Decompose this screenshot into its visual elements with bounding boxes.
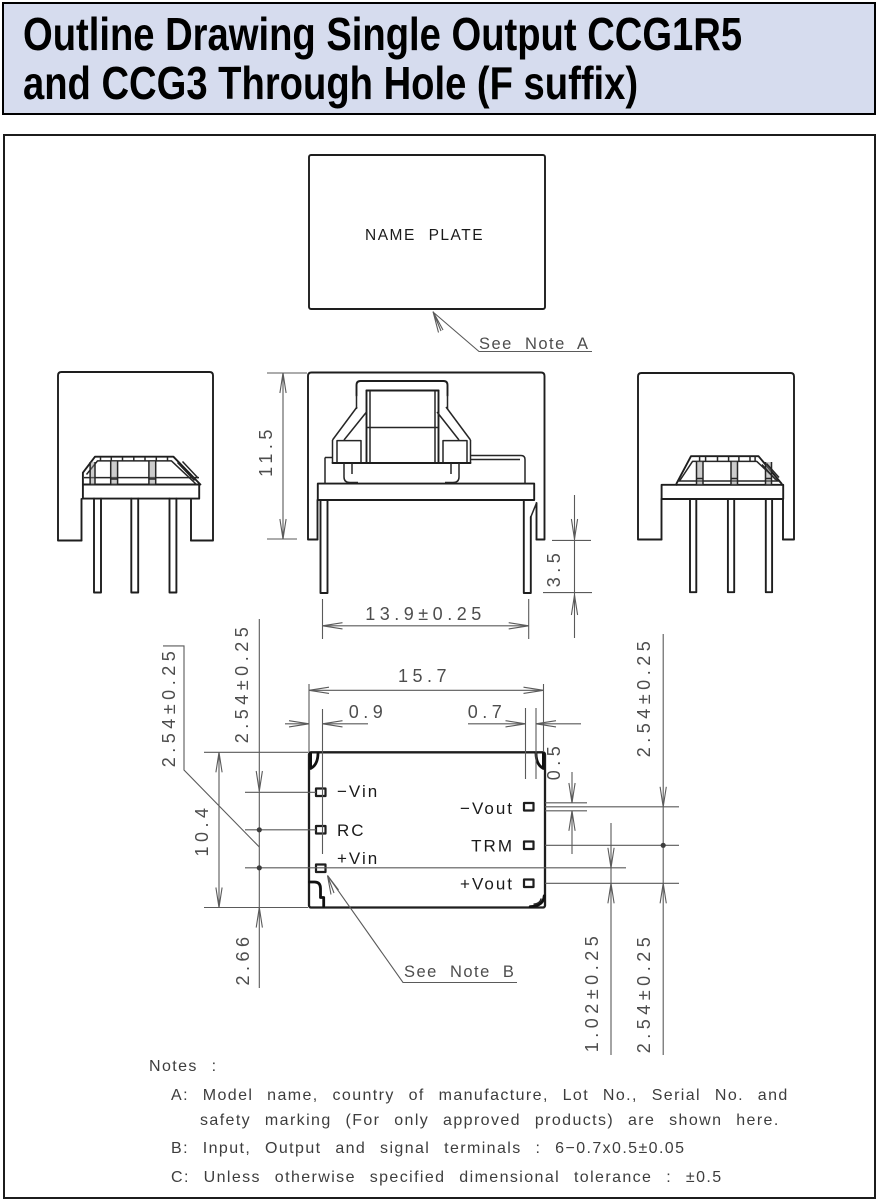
svg-text:−Vin: −Vin <box>337 782 379 801</box>
svg-text:safety marking (For only appro: safety marking (For only approved produc… <box>200 1112 780 1129</box>
svg-text:2.54±0.25: 2.54±0.25 <box>232 623 252 743</box>
svg-text:See Note B: See Note B <box>404 963 515 981</box>
svg-text:+Vin: +Vin <box>337 849 379 868</box>
svg-text:0.7: 0.7 <box>468 702 507 722</box>
svg-text:3.5: 3.5 <box>544 549 564 588</box>
svg-text:0.5: 0.5 <box>544 742 564 781</box>
svg-text:C: Unless otherwise specified: C: Unless otherwise specified dimensiona… <box>171 1169 723 1186</box>
svg-text:See Note A: See Note A <box>479 335 589 353</box>
svg-text:11.5: 11.5 <box>256 425 276 477</box>
svg-text:+Vout: +Vout <box>460 875 514 894</box>
svg-text:15.7: 15.7 <box>398 666 451 686</box>
svg-text:1.02±0.25: 1.02±0.25 <box>582 932 602 1052</box>
svg-text:TRM: TRM <box>471 837 514 856</box>
svg-text:NAME PLATE: NAME PLATE <box>365 227 484 244</box>
svg-text:−Vout: −Vout <box>460 799 514 818</box>
svg-text:10.4: 10.4 <box>192 803 212 856</box>
svg-text:2.66: 2.66 <box>233 932 253 985</box>
svg-text:2.54±0.25: 2.54±0.25 <box>159 647 179 767</box>
svg-text:Notes :: Notes : <box>149 1058 218 1075</box>
svg-text:13.9±0.25: 13.9±0.25 <box>365 604 485 624</box>
svg-text:0.9: 0.9 <box>349 702 388 722</box>
svg-text:RC: RC <box>337 821 366 840</box>
svg-text:B: Input, Output and signal te: B: Input, Output and signal terminals : … <box>171 1140 685 1157</box>
svg-text:A: Model name, country of manu: A: Model name, country of manufacture, L… <box>171 1087 789 1104</box>
svg-text:2.54±0.25: 2.54±0.25 <box>634 933 654 1053</box>
svg-text:2.54±0.25: 2.54±0.25 <box>634 637 654 757</box>
